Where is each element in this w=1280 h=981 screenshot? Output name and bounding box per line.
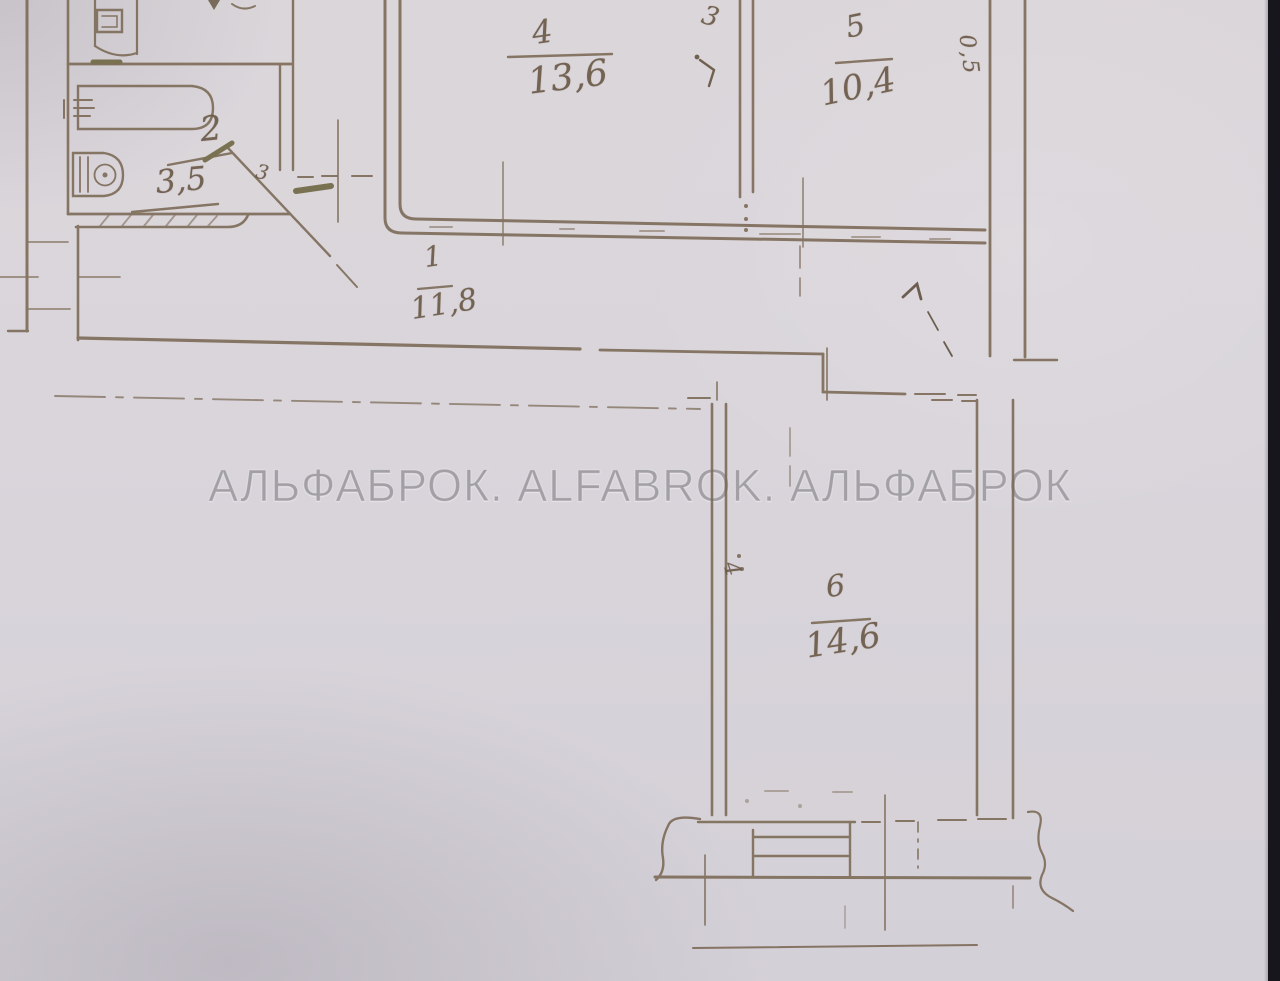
top-wall-ticks [503,162,803,296]
floorplan-drawing [0,0,1280,981]
window-icon [698,819,1006,876]
bathtub-icon [64,86,213,129]
divider-door-arrow [695,55,714,86]
right-outer-wall [990,0,1057,360]
corridor-door-arrow [903,284,952,356]
photo-edge [1268,0,1280,981]
bottom-dimension-ticks [693,791,977,948]
floorplan-scan: АЛЬФАБРОК. ALFABROK. АЛЬФАБРОК [0,0,1280,981]
annotation-wall-thickness: 0,5 [953,24,982,86]
room-label-4-number: 4 [530,15,555,50]
balcony-outline [655,812,1073,911]
hallway-top-wall [385,0,985,243]
top-edge-marks [208,0,255,10]
sink-icon [73,153,123,196]
left-outer-wall [8,0,78,340]
fraction-bars [132,54,892,623]
room-divider-wall [740,0,753,232]
bathroom-door-swing [228,120,372,287]
left-wall-ticks [0,242,120,309]
corridor-bottom-wall [78,338,976,400]
room-label-corridor-number: 1 [422,242,444,272]
room-label-bathroom-number: 2 [198,111,223,147]
axis-centerline [55,396,700,409]
toilet-icon [95,0,137,55]
room-label-6-number: 6 [824,571,846,603]
bathroom-wall-hatching [100,215,217,226]
